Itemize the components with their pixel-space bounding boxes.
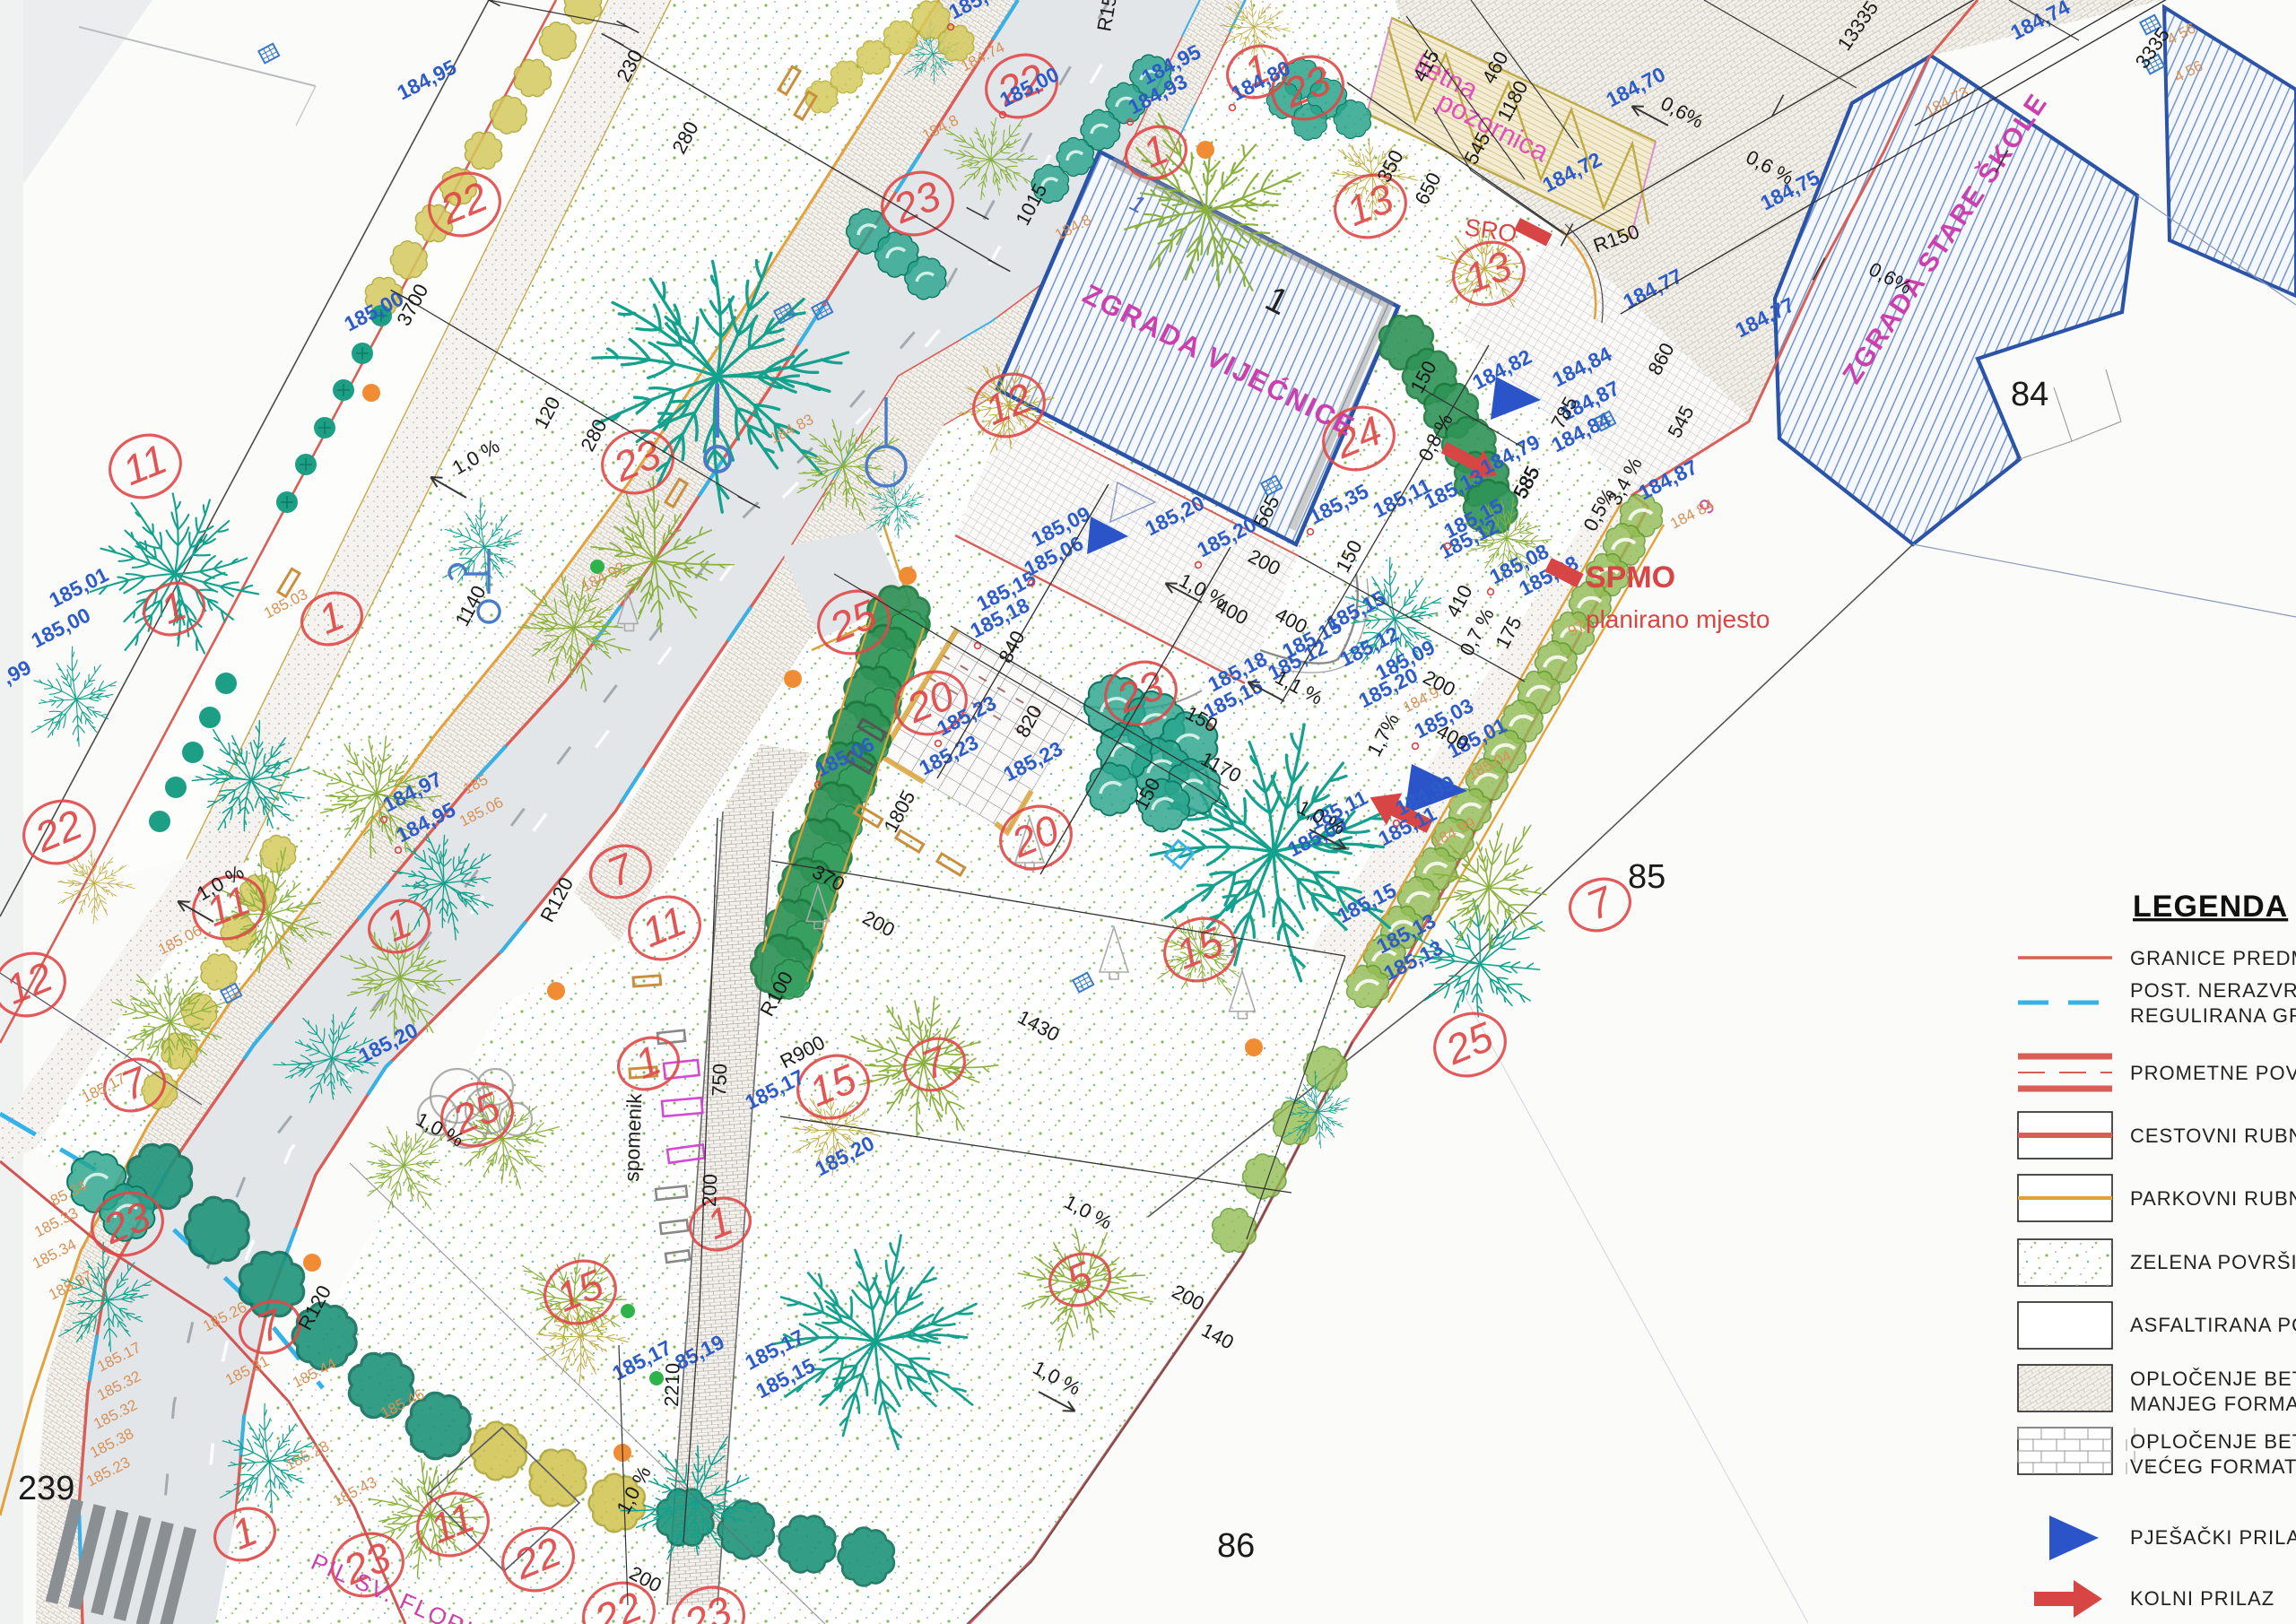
svg-text:KOLNI PRILAZ: KOLNI PRILAZ: [2130, 1587, 2274, 1610]
svg-text:750: 750: [708, 1064, 731, 1098]
svg-text:LEGENDA: LEGENDA: [2133, 890, 2288, 924]
svg-text:239: 239: [18, 1470, 74, 1507]
svg-text:2210: 2210: [660, 1362, 684, 1407]
svg-text:planirano mjesto: planirano mjesto: [1586, 605, 1770, 633]
svg-text:REGULIRANA GRADEV: REGULIRANA GRADEV: [2130, 1004, 2296, 1027]
svg-text:spomenik: spomenik: [620, 1092, 646, 1182]
svg-text:PJEŠAČKI PRILAZ: PJEŠAČKI PRILAZ: [2130, 1526, 2296, 1549]
svg-text:ASFALTIRANA POV: ASFALTIRANA POV: [2130, 1314, 2296, 1336]
svg-text:POST. NERAZVRSTAN: POST. NERAZVRSTAN: [2130, 979, 2296, 1002]
svg-text:SPMO: SPMO: [1586, 560, 1675, 595]
svg-text:ZELENA POVRŠINA: ZELENA POVRŠINA: [2130, 1251, 2296, 1273]
svg-text:84: 84: [2011, 376, 2048, 413]
svg-text:PARKOVNI RUBNIK: PARKOVNI RUBNIK: [2130, 1187, 2296, 1210]
svg-text:GRANICE PREDME: GRANICE PREDME: [2130, 947, 2296, 969]
svg-text:86: 86: [1217, 1527, 1255, 1565]
svg-text:PROMETNE POVRŠ: PROMETNE POVRŠ: [2130, 1062, 2296, 1084]
svg-text:VEĆEG FORMATA: VEĆEG FORMATA: [2130, 1455, 2296, 1478]
svg-text:OPLOČENJE BET.: OPLOČENJE BET.: [2130, 1430, 2296, 1453]
svg-text:85: 85: [1628, 858, 1665, 896]
svg-text:OPLOČENJE BET.: OPLOČENJE BET.: [2130, 1368, 2296, 1390]
svg-text:200: 200: [698, 1174, 721, 1208]
svg-text:MANJEG FORMATA: MANJEG FORMATA: [2130, 1393, 2296, 1415]
svg-text:CESTOVNI RUBNIK: CESTOVNI RUBNIK: [2130, 1125, 2296, 1147]
